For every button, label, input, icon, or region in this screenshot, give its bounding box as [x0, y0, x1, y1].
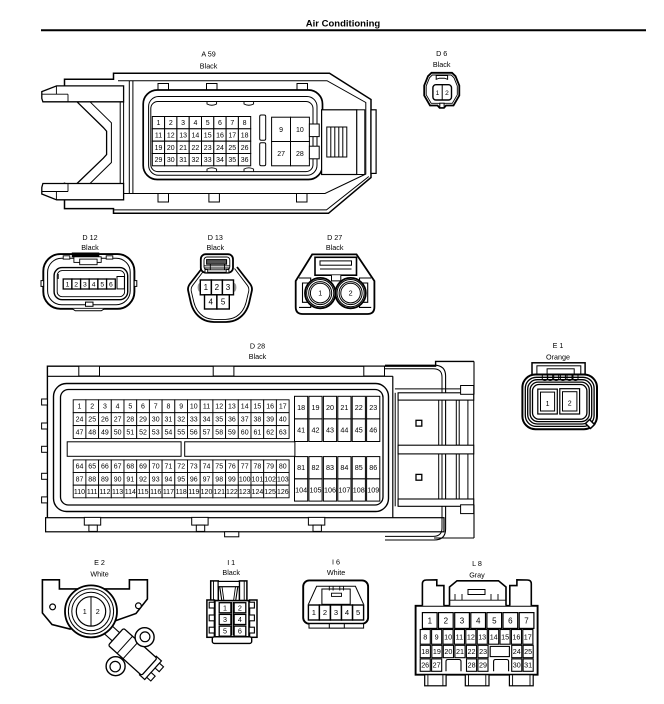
svg-text:64: 64 — [76, 464, 84, 471]
svg-text:2: 2 — [96, 607, 100, 616]
svg-text:18: 18 — [421, 647, 429, 656]
svg-text:91: 91 — [126, 476, 134, 483]
svg-text:2: 2 — [568, 401, 572, 408]
svg-text:19: 19 — [155, 145, 163, 152]
svg-text:59: 59 — [228, 430, 236, 437]
svg-text:6: 6 — [141, 404, 145, 411]
svg-text:1: 1 — [223, 603, 227, 612]
svg-text:126: 126 — [277, 489, 289, 496]
svg-text:118: 118 — [176, 489, 187, 496]
svg-text:5: 5 — [356, 608, 360, 617]
svg-text:20: 20 — [326, 403, 334, 412]
svg-text:1: 1 — [428, 616, 433, 625]
svg-text:26: 26 — [241, 145, 249, 152]
svg-text:13: 13 — [228, 404, 236, 411]
svg-text:105: 105 — [310, 486, 322, 495]
svg-text:L 8: L 8 — [472, 559, 482, 568]
svg-text:1: 1 — [318, 289, 322, 298]
svg-text:16: 16 — [266, 404, 274, 411]
svg-text:29: 29 — [479, 661, 487, 670]
svg-text:79: 79 — [266, 464, 274, 471]
svg-text:7: 7 — [154, 404, 158, 411]
svg-text:93: 93 — [152, 476, 160, 483]
svg-text:63: 63 — [279, 430, 287, 437]
svg-text:23: 23 — [204, 145, 212, 152]
svg-text:D 6: D 6 — [436, 49, 447, 58]
svg-text:120: 120 — [201, 489, 213, 496]
svg-text:108: 108 — [353, 486, 365, 495]
svg-text:4: 4 — [238, 615, 242, 624]
svg-text:6: 6 — [238, 627, 242, 636]
svg-text:2: 2 — [445, 90, 449, 97]
svg-text:37: 37 — [241, 417, 249, 424]
svg-text:125: 125 — [264, 489, 276, 496]
svg-text:62: 62 — [266, 430, 274, 437]
svg-text:30: 30 — [513, 661, 521, 670]
svg-text:72: 72 — [177, 464, 185, 471]
svg-text:14: 14 — [192, 132, 200, 139]
svg-text:6: 6 — [218, 120, 222, 127]
svg-text:106: 106 — [324, 486, 336, 495]
svg-text:70: 70 — [152, 464, 160, 471]
svg-text:E 2: E 2 — [94, 558, 105, 567]
svg-text:29: 29 — [155, 157, 163, 164]
svg-text:11: 11 — [203, 404, 210, 411]
svg-text:111: 111 — [87, 489, 98, 496]
svg-text:34: 34 — [216, 157, 224, 164]
svg-text:45: 45 — [355, 426, 363, 435]
svg-text:76: 76 — [228, 464, 236, 471]
svg-text:25: 25 — [524, 647, 532, 656]
svg-text:14: 14 — [490, 632, 498, 641]
svg-text:13: 13 — [179, 132, 187, 139]
svg-text:19: 19 — [433, 647, 441, 656]
svg-text:Black: Black — [326, 243, 344, 252]
svg-text:31: 31 — [179, 157, 187, 164]
svg-text:31: 31 — [524, 661, 532, 670]
svg-text:22: 22 — [192, 145, 200, 152]
svg-text:22: 22 — [468, 647, 476, 656]
svg-text:77: 77 — [241, 464, 249, 471]
svg-text:5: 5 — [221, 298, 226, 307]
svg-text:38: 38 — [254, 417, 262, 424]
svg-text:98: 98 — [215, 476, 223, 483]
svg-text:2: 2 — [215, 283, 220, 292]
svg-text:97: 97 — [203, 476, 211, 483]
svg-text:68: 68 — [126, 464, 134, 471]
svg-text:35: 35 — [228, 157, 236, 164]
svg-text:1: 1 — [312, 608, 316, 617]
svg-text:2: 2 — [444, 616, 449, 625]
svg-text:115: 115 — [137, 489, 148, 496]
svg-text:74: 74 — [203, 464, 211, 471]
svg-text:4: 4 — [208, 298, 213, 307]
svg-text:26: 26 — [421, 661, 429, 670]
svg-text:White: White — [327, 568, 345, 577]
svg-text:48: 48 — [88, 430, 96, 437]
svg-text:107: 107 — [338, 486, 350, 495]
svg-text:52: 52 — [139, 430, 147, 437]
svg-text:7: 7 — [524, 616, 529, 625]
svg-text:3: 3 — [226, 283, 231, 292]
svg-text:41: 41 — [297, 426, 305, 435]
svg-text:11: 11 — [456, 632, 463, 641]
svg-text:22: 22 — [355, 403, 363, 412]
svg-text:White: White — [90, 569, 108, 578]
svg-text:104: 104 — [295, 486, 307, 495]
svg-text:27: 27 — [433, 661, 441, 670]
svg-text:112: 112 — [99, 489, 110, 496]
svg-text:87: 87 — [76, 476, 84, 483]
svg-text:Black: Black — [200, 62, 218, 71]
svg-text:4: 4 — [345, 608, 349, 617]
svg-text:3: 3 — [223, 615, 227, 624]
svg-text:88: 88 — [88, 476, 96, 483]
svg-text:1: 1 — [436, 90, 440, 97]
svg-text:4: 4 — [476, 616, 481, 625]
svg-text:28: 28 — [126, 417, 134, 424]
svg-text:44: 44 — [340, 426, 348, 435]
svg-text:17: 17 — [524, 632, 532, 641]
svg-text:92: 92 — [139, 476, 147, 483]
svg-text:85: 85 — [355, 463, 363, 472]
svg-text:24: 24 — [76, 417, 84, 424]
svg-text:65: 65 — [88, 464, 96, 471]
svg-text:119: 119 — [188, 489, 199, 496]
svg-text:14: 14 — [241, 404, 249, 411]
svg-text:28: 28 — [468, 661, 476, 670]
svg-text:103: 103 — [277, 476, 289, 483]
svg-text:51: 51 — [126, 430, 134, 437]
svg-text:60: 60 — [241, 430, 249, 437]
svg-text:114: 114 — [125, 489, 136, 496]
svg-text:124: 124 — [252, 489, 264, 496]
svg-text:4: 4 — [193, 120, 197, 127]
svg-text:30: 30 — [152, 417, 160, 424]
svg-text:D 13: D 13 — [208, 233, 223, 242]
svg-text:3: 3 — [460, 616, 465, 625]
svg-text:1: 1 — [157, 120, 161, 127]
svg-text:7: 7 — [230, 120, 234, 127]
svg-text:81: 81 — [297, 463, 305, 472]
svg-text:50: 50 — [114, 430, 122, 437]
svg-text:100: 100 — [239, 476, 251, 483]
svg-text:67: 67 — [114, 464, 122, 471]
svg-text:12: 12 — [215, 404, 223, 411]
svg-text:90: 90 — [114, 476, 122, 483]
svg-text:89: 89 — [101, 476, 109, 483]
svg-text:3: 3 — [83, 281, 87, 288]
svg-text:1: 1 — [66, 281, 70, 288]
svg-text:8: 8 — [166, 404, 170, 411]
svg-text:49: 49 — [101, 430, 109, 437]
svg-text:2: 2 — [323, 608, 327, 617]
svg-text:71: 71 — [165, 464, 173, 471]
svg-text:20: 20 — [444, 647, 452, 656]
svg-text:123: 123 — [239, 489, 251, 496]
svg-text:18: 18 — [297, 403, 305, 412]
svg-text:33: 33 — [190, 417, 198, 424]
svg-text:2: 2 — [90, 404, 94, 411]
svg-text:E 1: E 1 — [553, 341, 564, 350]
svg-text:25: 25 — [228, 145, 236, 152]
svg-text:31: 31 — [165, 417, 173, 424]
svg-text:5: 5 — [206, 120, 210, 127]
svg-text:8: 8 — [423, 632, 427, 641]
svg-text:82: 82 — [312, 463, 320, 472]
svg-text:34: 34 — [203, 417, 211, 424]
svg-text:5: 5 — [492, 616, 497, 625]
svg-text:6: 6 — [508, 616, 513, 625]
svg-text:9: 9 — [435, 632, 439, 641]
svg-text:47: 47 — [76, 430, 84, 437]
svg-text:26: 26 — [101, 417, 109, 424]
svg-text:Orange: Orange — [546, 352, 570, 361]
svg-text:5: 5 — [128, 404, 132, 411]
svg-text:I 6: I 6 — [332, 558, 340, 567]
svg-text:12: 12 — [467, 632, 475, 641]
svg-text:Gray: Gray — [469, 571, 485, 580]
svg-text:5: 5 — [223, 627, 227, 636]
svg-text:21: 21 — [456, 647, 464, 656]
svg-text:36: 36 — [241, 157, 249, 164]
svg-text:33: 33 — [204, 157, 212, 164]
svg-text:1: 1 — [83, 607, 87, 616]
svg-text:55: 55 — [177, 430, 185, 437]
svg-text:27: 27 — [114, 417, 122, 424]
svg-text:25: 25 — [88, 417, 96, 424]
svg-text:121: 121 — [213, 489, 225, 496]
svg-text:23: 23 — [479, 647, 487, 656]
svg-text:117: 117 — [163, 489, 174, 496]
svg-text:2: 2 — [74, 281, 78, 288]
svg-text:Black: Black — [81, 243, 99, 252]
svg-text:30: 30 — [167, 157, 175, 164]
svg-text:57: 57 — [203, 430, 211, 437]
svg-text:Air Conditioning: Air Conditioning — [306, 19, 381, 30]
svg-text:116: 116 — [150, 489, 161, 496]
svg-text:2: 2 — [169, 120, 173, 127]
svg-text:D 12: D 12 — [82, 233, 97, 242]
svg-text:110: 110 — [74, 489, 85, 496]
svg-text:53: 53 — [152, 430, 160, 437]
svg-text:109: 109 — [367, 486, 379, 495]
svg-text:16: 16 — [216, 132, 224, 139]
svg-text:40: 40 — [279, 417, 287, 424]
svg-text:13: 13 — [478, 632, 486, 641]
svg-text:2: 2 — [349, 289, 353, 298]
svg-text:D 27: D 27 — [327, 233, 342, 242]
svg-text:11: 11 — [155, 132, 162, 139]
svg-text:Black: Black — [433, 60, 451, 69]
svg-text:69: 69 — [139, 464, 147, 471]
svg-text:46: 46 — [369, 426, 377, 435]
svg-text:6: 6 — [109, 281, 113, 288]
svg-text:18: 18 — [241, 132, 249, 139]
svg-text:80: 80 — [279, 464, 287, 471]
svg-text:19: 19 — [312, 403, 320, 412]
svg-text:102: 102 — [264, 476, 276, 483]
svg-text:113: 113 — [112, 489, 123, 496]
svg-text:20: 20 — [167, 145, 175, 152]
svg-text:96: 96 — [190, 476, 198, 483]
svg-text:8: 8 — [243, 120, 247, 127]
svg-text:9: 9 — [179, 404, 183, 411]
svg-text:4: 4 — [116, 404, 120, 411]
svg-text:58: 58 — [215, 430, 223, 437]
svg-text:15: 15 — [501, 632, 509, 641]
svg-text:32: 32 — [177, 417, 185, 424]
svg-text:78: 78 — [254, 464, 262, 471]
svg-text:Black: Black — [249, 352, 267, 361]
svg-text:1: 1 — [204, 283, 209, 292]
svg-text:9: 9 — [279, 127, 283, 134]
svg-text:27: 27 — [277, 151, 285, 158]
svg-text:24: 24 — [513, 647, 521, 656]
svg-text:15: 15 — [254, 404, 262, 411]
svg-text:3: 3 — [181, 120, 185, 127]
svg-text:Black: Black — [207, 243, 225, 252]
svg-text:56: 56 — [190, 430, 198, 437]
svg-text:83: 83 — [326, 463, 334, 472]
svg-text:32: 32 — [192, 157, 200, 164]
svg-text:84: 84 — [340, 463, 348, 472]
svg-text:24: 24 — [216, 145, 224, 152]
svg-text:29: 29 — [139, 417, 147, 424]
svg-text:2: 2 — [238, 603, 242, 612]
svg-text:122: 122 — [226, 489, 238, 496]
svg-text:1: 1 — [78, 404, 82, 411]
svg-text:17: 17 — [228, 132, 236, 139]
svg-text:101: 101 — [252, 476, 264, 483]
svg-text:17: 17 — [279, 404, 287, 411]
svg-text:35: 35 — [215, 417, 223, 424]
svg-text:86: 86 — [369, 463, 377, 472]
svg-text:I 1: I 1 — [227, 558, 235, 567]
svg-text:12: 12 — [167, 132, 175, 139]
svg-text:4: 4 — [92, 281, 96, 288]
svg-text:28: 28 — [296, 151, 304, 158]
svg-text:1: 1 — [546, 401, 550, 408]
svg-text:75: 75 — [215, 464, 223, 471]
svg-text:39: 39 — [266, 417, 274, 424]
svg-text:A 59: A 59 — [201, 50, 215, 59]
svg-text:21: 21 — [340, 403, 348, 412]
svg-text:21: 21 — [179, 145, 187, 152]
svg-text:Black: Black — [222, 568, 240, 577]
svg-text:43: 43 — [326, 426, 334, 435]
svg-text:10: 10 — [444, 632, 452, 641]
svg-text:10: 10 — [190, 404, 198, 411]
svg-text:99: 99 — [228, 476, 236, 483]
svg-text:95: 95 — [177, 476, 185, 483]
svg-text:15: 15 — [204, 132, 212, 139]
svg-text:42: 42 — [312, 426, 320, 435]
svg-text:D 28: D 28 — [250, 342, 265, 351]
svg-text:36: 36 — [228, 417, 236, 424]
svg-text:3: 3 — [334, 608, 338, 617]
svg-text:61: 61 — [254, 430, 262, 437]
svg-text:23: 23 — [369, 403, 377, 412]
svg-text:66: 66 — [101, 464, 109, 471]
svg-text:73: 73 — [190, 464, 198, 471]
svg-text:94: 94 — [165, 476, 173, 483]
svg-text:16: 16 — [512, 632, 520, 641]
svg-text:3: 3 — [103, 404, 107, 411]
svg-text:10: 10 — [296, 127, 304, 134]
svg-text:5: 5 — [100, 281, 104, 288]
svg-text:54: 54 — [165, 430, 173, 437]
